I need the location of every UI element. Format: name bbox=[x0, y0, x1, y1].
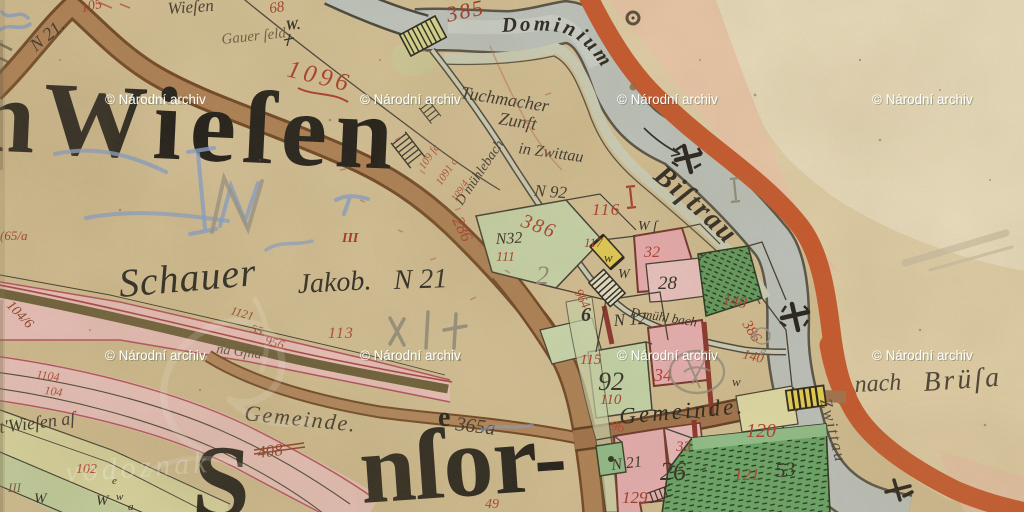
svg-text:© Národní archiv: © Národní archiv bbox=[105, 92, 206, 107]
svg-text:© Národní archiv: © Národní archiv bbox=[105, 348, 206, 363]
svg-text:© Národní archiv: © Národní archiv bbox=[872, 348, 973, 363]
svg-text:© Národní archiv: © Národní archiv bbox=[360, 92, 461, 107]
svg-text:© Národní archiv: © Národní archiv bbox=[617, 92, 718, 107]
svg-text:© Národní archiv: © Národní archiv bbox=[360, 348, 461, 363]
svg-text:© Národní archiv: © Národní archiv bbox=[617, 348, 718, 363]
svg-text:© Národní archiv: © Národní archiv bbox=[872, 92, 973, 107]
